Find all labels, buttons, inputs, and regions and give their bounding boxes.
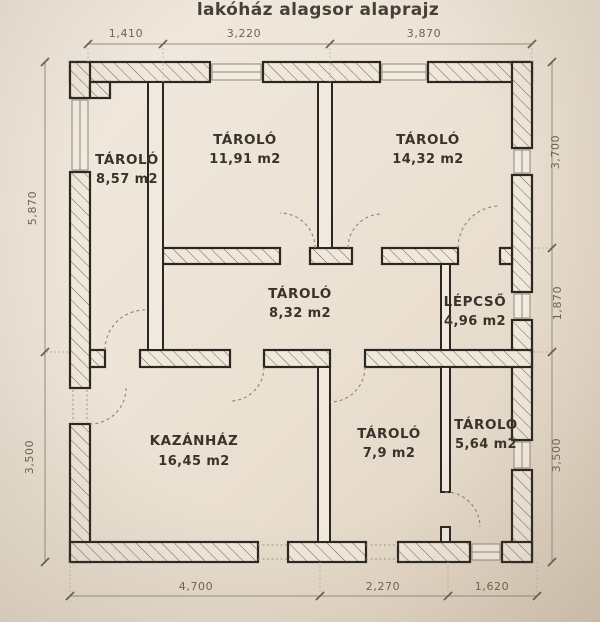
room-area: 8,57 m2 <box>96 172 158 187</box>
wall-segment <box>365 350 532 367</box>
wall-segment <box>163 248 280 264</box>
room-name: TÁROLÓ <box>268 284 332 302</box>
dim-right-2: 1,870 <box>551 286 564 321</box>
wall-segment <box>441 367 450 492</box>
door-arc <box>445 492 480 527</box>
room-label-boiler-room: KAZÁNHÁZ 16,45 m2 <box>150 432 239 469</box>
room-name: TÁROLÓ <box>454 415 518 433</box>
room-area: 4,96 m2 <box>444 314 506 329</box>
room-label-storage-79: TÁROLÓ 7,9 m2 <box>357 424 421 461</box>
dim-left-1: 5,870 <box>26 191 39 226</box>
wall-segment <box>382 248 458 264</box>
door-arc <box>330 367 365 402</box>
door-openings <box>73 390 398 559</box>
dim-top-1: 1,410 <box>109 27 144 40</box>
dim-right-1: 3,700 <box>549 135 562 170</box>
room-label-storage-1432: TÁROLÓ 14,32 m2 <box>392 130 463 167</box>
room-area: 16,45 m2 <box>158 454 229 469</box>
door-arc <box>348 214 382 248</box>
room-label-storage-832: TÁROLÓ 8,32 m2 <box>268 284 332 321</box>
wall-segment <box>398 542 470 562</box>
room-area: 7,9 m2 <box>363 446 416 461</box>
room-area: 11,91 m2 <box>209 152 280 167</box>
room-name: TÁROLÓ <box>396 130 460 148</box>
wall-segment <box>148 82 163 350</box>
wall-segment <box>70 62 90 98</box>
wall-segment <box>70 172 90 388</box>
wall-segment <box>512 62 532 148</box>
wall-segment <box>512 175 532 292</box>
wall-segment <box>318 82 332 248</box>
room-area: 14,32 m2 <box>392 152 463 167</box>
room-name: KAZÁNHÁZ <box>150 432 239 449</box>
dim-top-3: 3,870 <box>407 27 442 40</box>
room-label-staircase: LÉPCSŐ 4,96 m2 <box>444 292 507 329</box>
room-area: 8,32 m2 <box>269 306 331 321</box>
dim-top-2: 3,220 <box>227 27 262 40</box>
dim-bottom-2: 2,270 <box>366 580 401 593</box>
wall-segment <box>318 367 330 542</box>
wall-segment <box>90 350 105 367</box>
door-arc <box>230 367 264 401</box>
door-arc <box>90 388 126 424</box>
wall-segment <box>264 350 330 367</box>
dim-bottom-1: 4,700 <box>179 580 214 593</box>
room-name: LÉPCSŐ <box>444 292 507 310</box>
dim-left-2: 3,500 <box>23 440 36 475</box>
floorplan-page: lakóház alagsor alaprajz <box>0 0 600 622</box>
wall-segment <box>70 542 258 562</box>
wall-segment <box>310 248 352 264</box>
room-area: 5,64 m2 <box>455 437 517 452</box>
dim-right-3: 3,500 <box>550 438 563 473</box>
wall-segment <box>263 62 380 82</box>
wall-segment <box>441 527 450 542</box>
wall-segment <box>500 248 512 264</box>
wall-segment <box>502 542 532 562</box>
dim-bottom-3: 1,620 <box>475 580 510 593</box>
wall-segment <box>90 82 110 98</box>
door-arc <box>105 310 145 350</box>
room-label-storage-564: TÁROLÓ 5,64 m2 <box>454 415 518 452</box>
wall-segment <box>288 542 366 562</box>
room-name: TÁROLÓ <box>357 424 421 442</box>
floorplan-drawing: 1,410 3,220 3,870 4,700 2,270 1,620 5,87… <box>0 0 600 622</box>
wall-segment <box>140 350 230 367</box>
room-name: TÁROLÓ <box>213 130 277 148</box>
room-name: TÁROLÓ <box>95 150 159 168</box>
door-arc <box>280 213 315 248</box>
room-label-storage-1191: TÁROLÓ 11,91 m2 <box>209 130 280 167</box>
door-arc <box>458 206 500 248</box>
